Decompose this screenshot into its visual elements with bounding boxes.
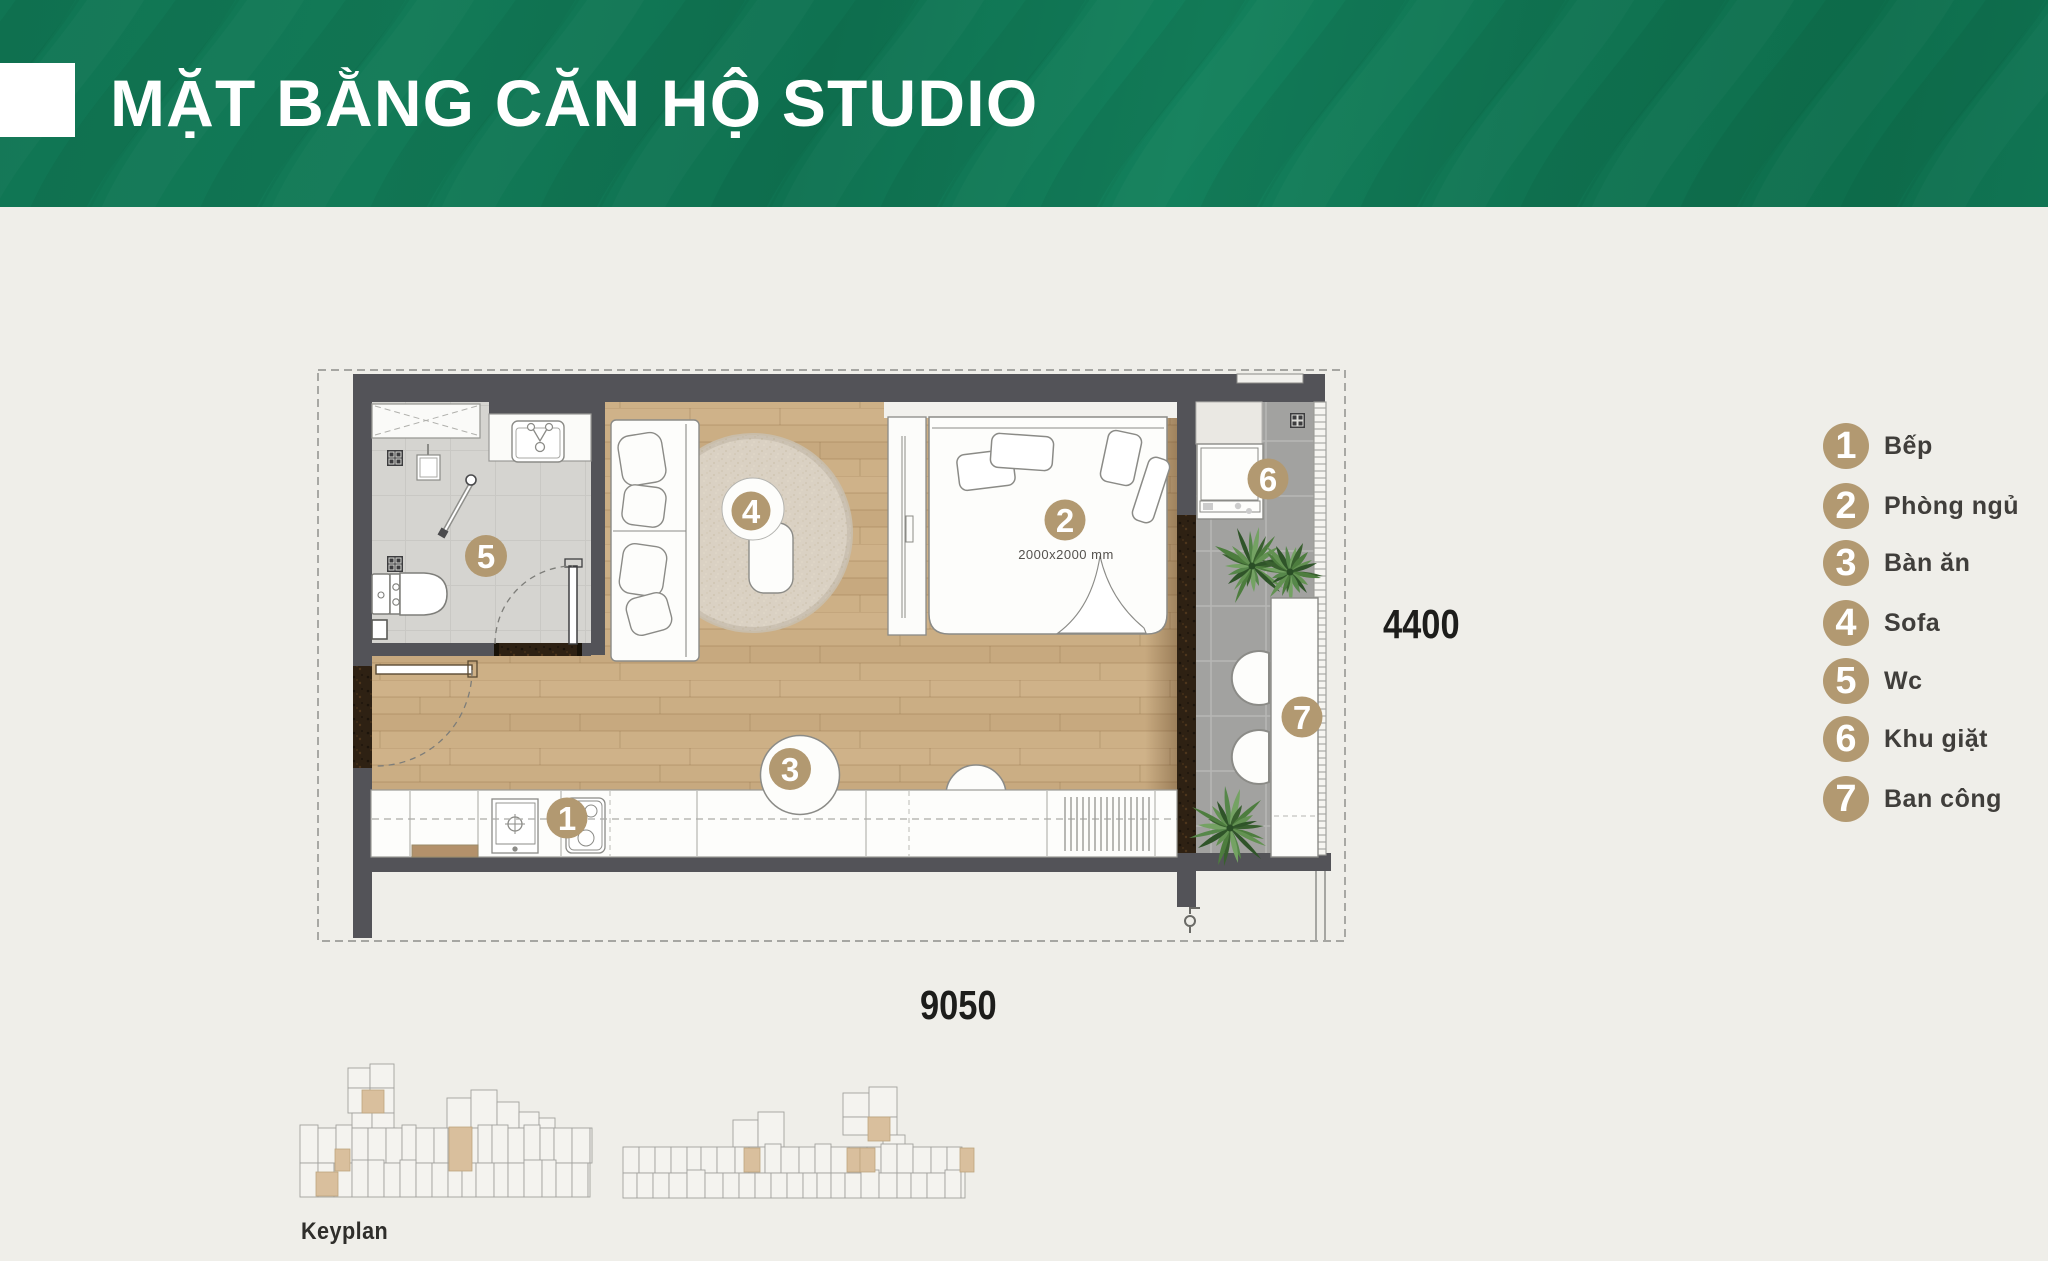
svg-text:2000x2000 mm: 2000x2000 mm	[1018, 547, 1114, 562]
svg-text:4: 4	[742, 493, 761, 530]
svg-text:6: 6	[1259, 461, 1277, 498]
svg-text:2: 2	[1056, 502, 1074, 539]
svg-text:7: 7	[1293, 699, 1311, 736]
svg-text:5: 5	[477, 538, 495, 575]
svg-text:3: 3	[781, 751, 799, 788]
svg-text:1: 1	[558, 800, 576, 837]
